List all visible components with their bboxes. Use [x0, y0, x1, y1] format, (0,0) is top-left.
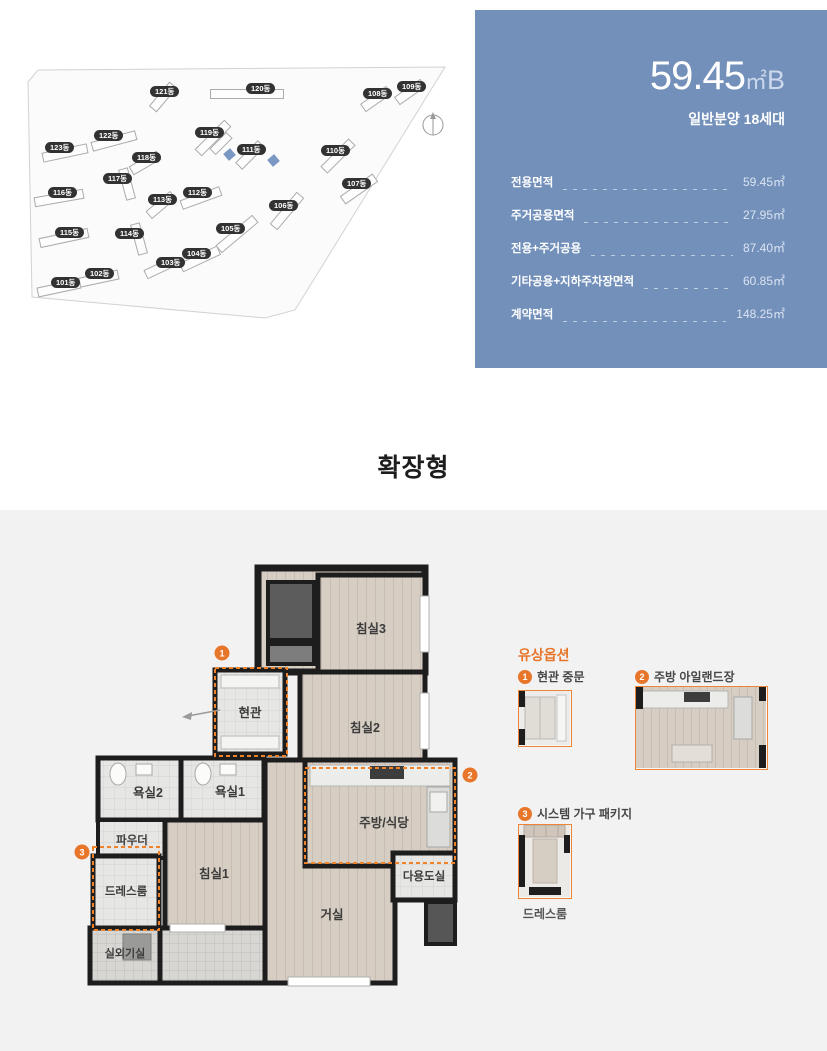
option-marker-3: 3 — [79, 848, 84, 858]
spec-value: 59.45㎡ — [743, 173, 785, 190]
building-badge: 102동 — [85, 268, 114, 279]
option-3-badge: 3 — [518, 807, 532, 821]
building-marker: 105동 — [216, 218, 245, 236]
compass-icon — [423, 112, 443, 135]
spec-row: 전용+주거공용 87.40㎡ — [511, 239, 785, 272]
unit-area-value: 59.45 — [650, 54, 745, 98]
option-item-3: 3 시스템 가구 패키지 — [518, 805, 632, 822]
option-marker-1: 1 — [219, 649, 224, 659]
balcony — [160, 928, 265, 983]
option-item-1: 1 현관 중문 — [518, 668, 585, 685]
floor-plan-section: 1 2 3 침실3 침실2 현관 욕실2 욕 — [0, 510, 827, 1051]
plan-shaft — [268, 582, 314, 640]
entrance-closet — [221, 736, 279, 749]
room-label-dressroom: 드레스룸 — [105, 884, 148, 898]
option-1-thumbnail — [518, 690, 572, 747]
spec-label: 전용+주거공용 — [511, 240, 581, 256]
building-marker: 108동 — [363, 83, 392, 101]
building-badge: 122동 — [94, 130, 123, 141]
spec-label: 주거공용면적 — [511, 207, 574, 223]
option-3-thumbnail — [518, 824, 572, 899]
entrance-closet — [221, 675, 279, 688]
building-badge: 107동 — [342, 178, 371, 189]
plan-elevator — [268, 644, 314, 664]
building-badge: 118동 — [132, 152, 161, 163]
building-marker: 107동 — [342, 173, 371, 191]
building-marker: 104동 — [182, 243, 211, 261]
toilet-fixture — [110, 763, 126, 785]
building-badge: 119동 — [195, 127, 224, 138]
building-badge: 123동 — [45, 142, 74, 153]
paid-options-heading: 유상옵션 — [518, 645, 570, 665]
building-badge: 115동 — [55, 227, 84, 238]
option-2-badge: 2 — [635, 670, 649, 684]
option-2-label: 주방 아일랜드장 — [654, 668, 735, 685]
unit-type-title: 59.45㎡B — [511, 54, 785, 99]
building-badge: 104동 — [182, 248, 211, 259]
building-marker: 111동 — [237, 139, 266, 157]
building-badge: 112동 — [183, 187, 212, 198]
building-marker: 123동 — [45, 137, 74, 155]
plan-side-block — [426, 902, 455, 944]
building-marker: 112동 — [183, 182, 212, 200]
spec-row: 기타공용+지하주차장면적 60.85㎡ — [511, 272, 785, 305]
unit-type-letter: B — [767, 65, 785, 95]
building-marker: 121동 — [150, 81, 179, 99]
toilet-fixture — [195, 763, 211, 785]
unit-info-panel: 59.45㎡B 일반분양 18세대 전용면적 59.45㎡ 주거공용면적 27.… — [475, 10, 827, 368]
room-label-ac-room: 실외기실 — [105, 946, 145, 960]
building-badge: 105동 — [216, 223, 245, 234]
building-marker: 101동 — [51, 272, 80, 290]
spec-label: 계약면적 — [511, 306, 553, 322]
building-marker: 117동 — [103, 168, 132, 186]
room-label-utility: 다용도실 — [403, 869, 445, 883]
building-badge: 116동 — [48, 187, 77, 198]
spec-label: 전용면적 — [511, 174, 553, 190]
option-1-label: 현관 중문 — [537, 668, 585, 685]
room-label-kitchen: 주방/식당 — [359, 815, 409, 830]
building-badge: 108동 — [363, 88, 392, 99]
option-3-caption: 드레스룸 — [518, 905, 572, 922]
dotted-leader — [563, 321, 726, 322]
building-marker: 102동 — [85, 263, 114, 281]
building-badge: 117동 — [103, 173, 132, 184]
room-label-bedroom2: 침실2 — [350, 720, 380, 735]
spec-row: 계약면적 148.25㎡ — [511, 305, 785, 338]
option-3-label: 시스템 가구 패키지 — [537, 805, 632, 822]
spec-value: 148.25㎡ — [736, 305, 785, 322]
unit-area-unit: ㎡ — [745, 69, 767, 94]
building-badge: 111동 — [237, 144, 266, 155]
kitchen-appliance — [430, 792, 447, 812]
unit-sale-subtitle: 일반분양 18세대 — [511, 109, 785, 129]
option-1-badge: 1 — [518, 670, 532, 684]
building-marker: 113동 — [148, 189, 177, 207]
building-badge: 101동 — [51, 277, 80, 288]
building-marker: 106동 — [269, 195, 298, 213]
spec-row: 전용면적 59.45㎡ — [511, 173, 785, 206]
building-badge: 106동 — [269, 200, 298, 211]
spec-value: 27.95㎡ — [743, 206, 785, 223]
building-marker: 118동 — [132, 147, 161, 165]
building-marker: 120동 — [246, 78, 275, 96]
dotted-leader — [584, 222, 732, 223]
paid-options-panel: 유상옵션 1 현관 중문 2 주방 아일랜드장 — [518, 645, 818, 1045]
option-marker-2: 2 — [467, 771, 472, 781]
building-marker: 109동 — [397, 76, 426, 94]
sink-fixture — [136, 764, 152, 775]
building-badge: 103동 — [156, 257, 185, 268]
building-badge: 110동 — [321, 145, 350, 156]
room-label-entrance: 현관 — [238, 705, 262, 720]
room-label-living: 거실 — [320, 907, 343, 922]
room-label-bedroom1: 침실1 — [199, 866, 229, 881]
building-badge: 120동 — [246, 83, 275, 94]
dotted-leader — [591, 255, 733, 256]
floor-plan: 1 2 3 침실3 침실2 현관 욕실2 욕 — [70, 556, 480, 991]
building-marker: 103동 — [156, 252, 185, 270]
spec-value: 60.85㎡ — [743, 272, 785, 289]
building-marker: 110동 — [321, 140, 350, 158]
room-label-bedroom3: 침실3 — [356, 621, 386, 636]
room-label-bath2: 욕실2 — [133, 785, 163, 800]
building-marker: 116동 — [48, 182, 77, 200]
building-badge: 114동 — [115, 228, 144, 239]
spec-label: 기타공용+지하주차장면적 — [511, 273, 634, 289]
spec-value: 87.40㎡ — [743, 239, 785, 256]
dotted-leader — [563, 189, 733, 190]
page: 121동 120동 108동 109동 123동 122동 119동 111동 … — [0, 0, 827, 1051]
building-badge: 121동 — [150, 86, 179, 97]
dotted-leader — [644, 288, 733, 289]
area-spec-table: 전용면적 59.45㎡ 주거공용면적 27.95㎡ 전용+주거공용 87.40㎡… — [511, 173, 785, 338]
option-item-2: 2 주방 아일랜드장 — [635, 668, 735, 685]
room-label-powder: 파우더 — [116, 833, 148, 847]
spec-row: 주거공용면적 27.95㎡ — [511, 206, 785, 239]
option-2-thumbnail — [635, 686, 768, 770]
page-title: 확장형 — [0, 448, 827, 484]
sink-fixture — [220, 764, 236, 775]
building-badge: 113동 — [148, 194, 177, 205]
building-badge: 109동 — [397, 81, 426, 92]
building-marker: 119동 — [195, 122, 224, 140]
building-marker: 115동 — [55, 222, 84, 240]
site-map: 121동 120동 108동 109동 123동 122동 119동 111동 … — [10, 40, 465, 330]
building-marker: 114동 — [115, 223, 144, 241]
building-marker: 122동 — [94, 125, 123, 143]
room-label-bath1: 욕실1 — [215, 784, 245, 799]
